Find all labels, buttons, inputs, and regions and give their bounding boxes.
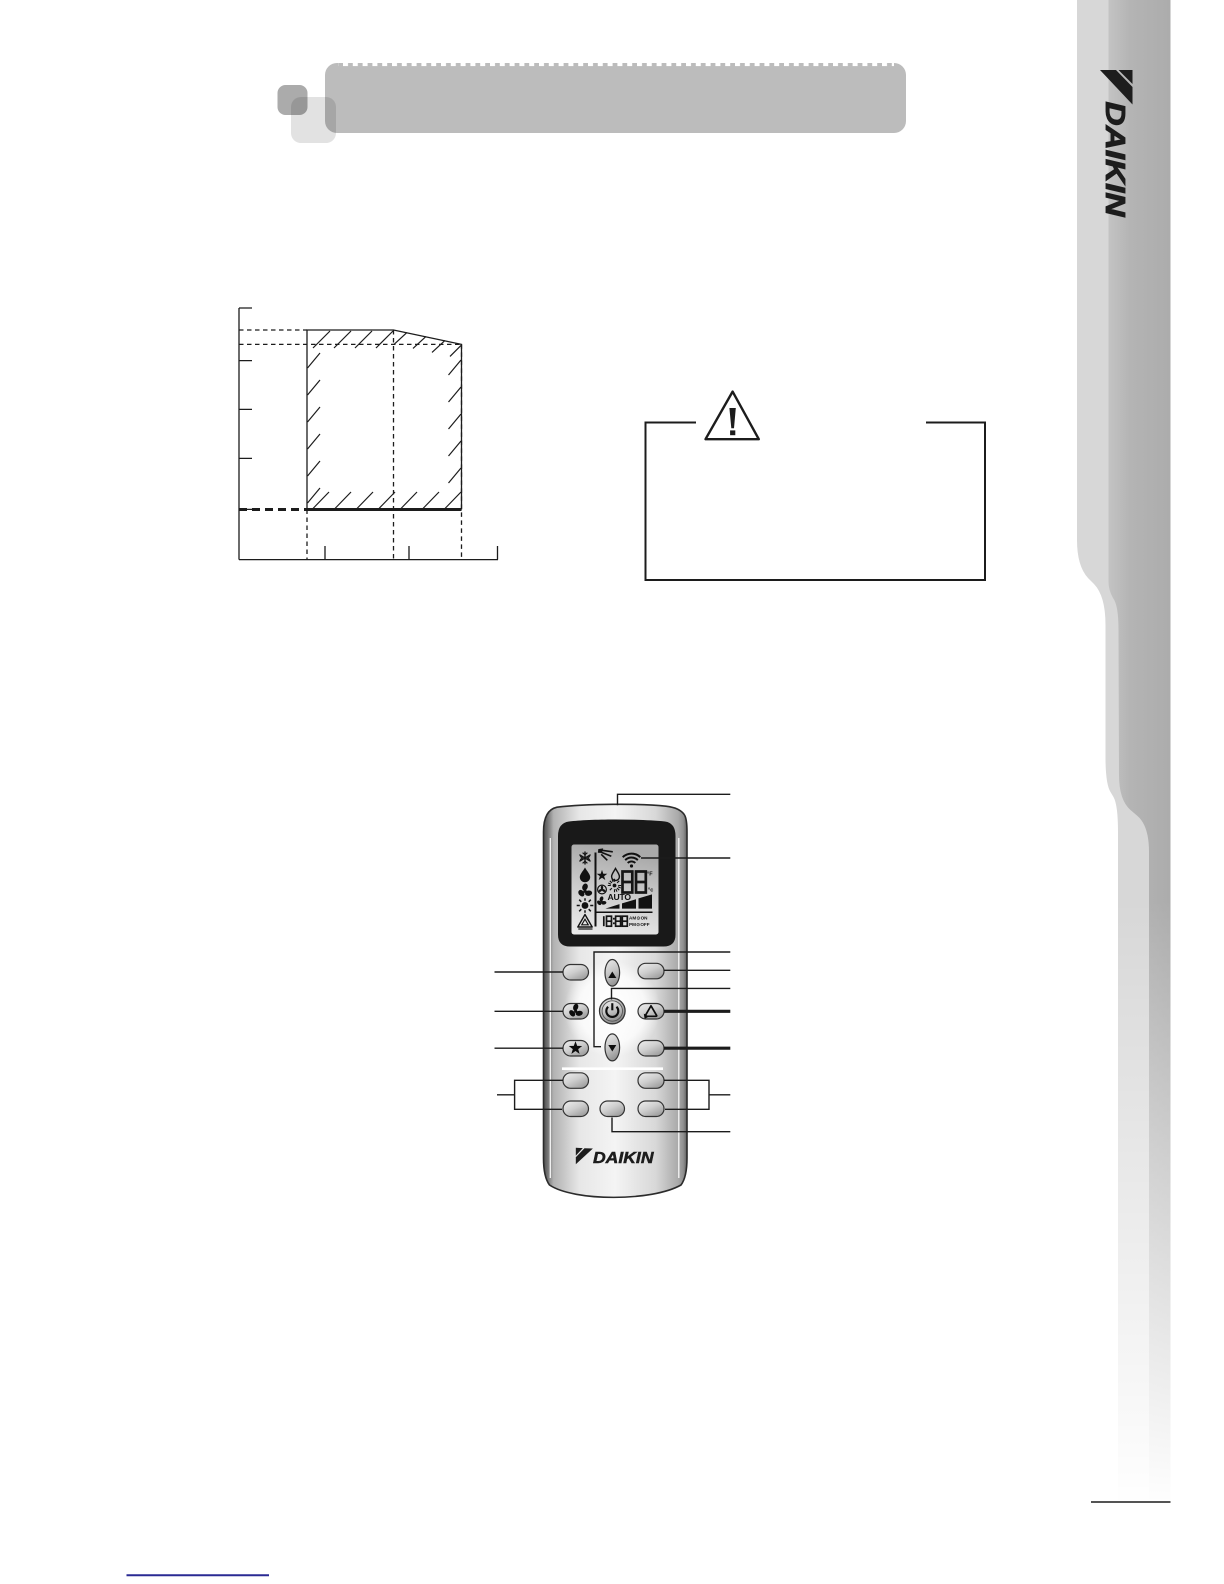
svg-text:°c: °c (648, 888, 653, 894)
svg-text:PM⊙OFF: PM⊙OFF (629, 922, 650, 927)
svg-text:AM⊙ON: AM⊙ON (629, 916, 648, 921)
svg-text:AUTO: AUTO (608, 892, 632, 902)
svg-text:DAIKIN: DAIKIN (1100, 102, 1131, 218)
svg-text:°F: °F (647, 872, 653, 878)
svg-text:DAIKIN: DAIKIN (593, 1150, 654, 1167)
